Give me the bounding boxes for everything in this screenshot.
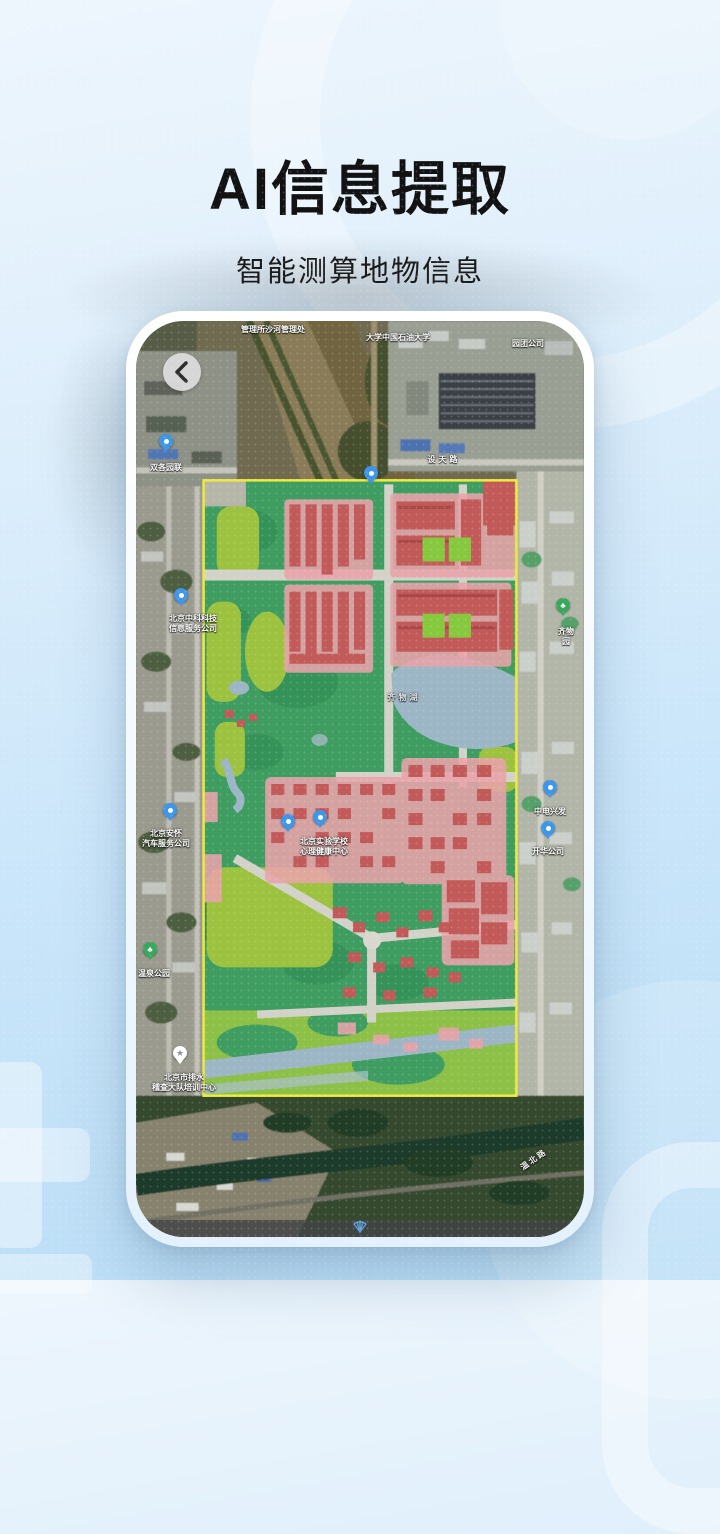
map-pin-blue[interactable] (159, 434, 173, 448)
back-button[interactable] (163, 353, 201, 391)
map-pin-green[interactable]: ♣ (556, 598, 570, 612)
page-title: AI信息提取 (0, 142, 720, 226)
hero-section: AI信息提取 智能测算地物信息 (0, 0, 720, 290)
back-chevron-icon (163, 353, 201, 391)
map-pin-blue[interactable] (174, 588, 188, 602)
page: { "hero": { "title": "AI信息提取", "subtitle… (0, 0, 720, 1280)
decor-rounded-rect-bottom-right (602, 1142, 720, 1534)
satellite-map (136, 321, 584, 1237)
map-pin-blue[interactable] (313, 810, 327, 824)
shell-compass-icon[interactable] (351, 1220, 369, 1233)
map-pin-blue[interactable] (543, 780, 557, 794)
map-pin-blue[interactable] (541, 821, 555, 835)
phone-mockup: 管理所沙河管理处大学中国石油大学园团公司双各园联设天路北京中科科技 信息服务公司… (126, 311, 594, 1247)
decor-plus-bottom (0, 1254, 92, 1294)
map-pin-blue[interactable] (163, 803, 177, 817)
map-pin-blue[interactable] (364, 466, 378, 480)
map-pin-green[interactable]: ♣ (143, 942, 157, 956)
map-screen[interactable]: 管理所沙河管理处大学中国石油大学园团公司双各园联设天路北京中科科技 信息服务公司… (136, 321, 584, 1237)
decor-plus-left (0, 1128, 90, 1182)
map-pin-blue[interactable] (281, 814, 295, 828)
page-subtitle: 智能测算地物信息 (0, 248, 720, 290)
map-pin-star[interactable]: ★ (173, 1046, 187, 1060)
decor-plus-left-vertical (0, 1062, 42, 1248)
